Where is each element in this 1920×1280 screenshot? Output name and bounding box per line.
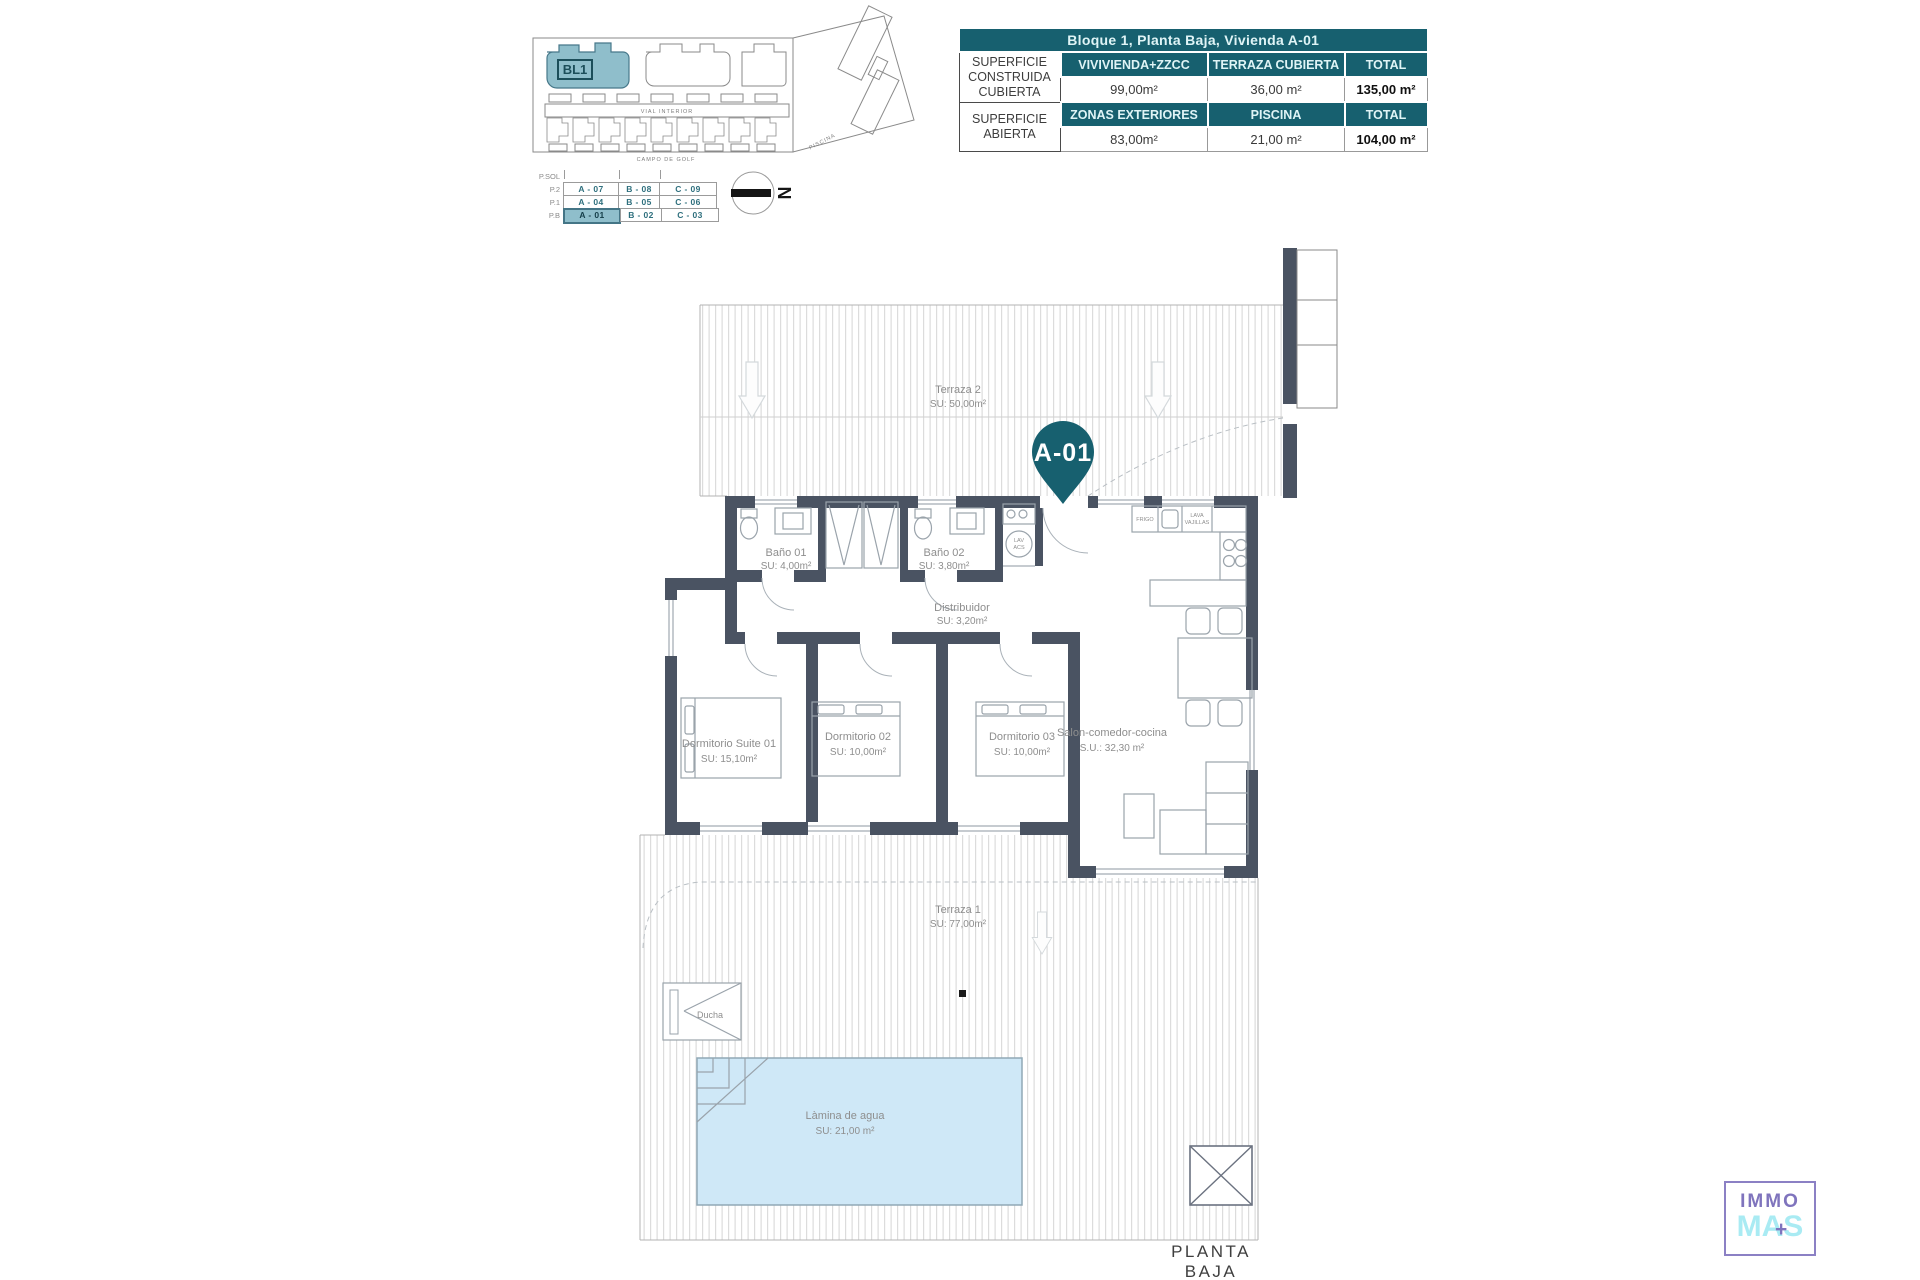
- acs-label: ACS: [1013, 545, 1025, 551]
- matrix-cell: C - 06: [659, 195, 717, 209]
- terrace-2: [700, 248, 1337, 500]
- lava-label-1: LAVA: [1190, 513, 1204, 519]
- logo-line-2: MAS: [1726, 1212, 1814, 1242]
- bano2-label: Baño 02: [924, 547, 965, 559]
- dorm2-label: Dormitorio 02: [825, 731, 891, 743]
- matrix-row-label: P.1: [534, 196, 564, 209]
- matrix-header: P.SOL: [534, 170, 564, 183]
- lava-label-2: VAJILLAS: [1185, 520, 1210, 526]
- summary-title: Bloque 1, Planta Baja, Vivienda A-01: [959, 28, 1428, 52]
- summary-value: 83,00m²: [1061, 127, 1208, 152]
- matrix-tick: [619, 170, 660, 179]
- unit-pin-label: A-01: [1034, 439, 1092, 467]
- distribuidor-area: SU: 3,20m²: [937, 616, 988, 627]
- matrix-tick: [564, 170, 619, 179]
- site-plan: PISCINA BL1 VIAL INTERIOR: [533, 6, 914, 163]
- immomas-logo: IMMO MAS +: [1724, 1181, 1816, 1256]
- site-piscina-label: PISCINA: [808, 133, 837, 152]
- logo-plus-icon: +: [1775, 1219, 1787, 1240]
- drain: [959, 990, 966, 997]
- frigo-label: FRIGO: [1136, 517, 1154, 523]
- summary-col-header: TOTAL: [1345, 102, 1428, 127]
- matrix-cell: A - 04: [563, 195, 619, 209]
- pool-label: Làmina de agua: [806, 1110, 886, 1122]
- distribuidor-label: Distribuidor: [934, 602, 990, 614]
- dorm3-area: SU: 10,00m²: [994, 747, 1051, 758]
- plan-drawing: PISCINA BL1 VIAL INTERIOR: [0, 0, 1920, 1280]
- bl1-label: BL1: [563, 62, 588, 77]
- summary-value: 99,00m²: [1061, 77, 1208, 102]
- matrix-row-label: P.B: [534, 209, 564, 224]
- lav-label: LAV: [1014, 538, 1024, 544]
- summary-col-header: PISCINA: [1208, 102, 1345, 127]
- bano2-area: SU: 3,80m²: [919, 561, 970, 572]
- dorm3-label: Dormitorio 03: [989, 731, 1055, 743]
- bano1-area: SU: 4,00m²: [761, 561, 812, 572]
- bano1-label: Baño 01: [766, 547, 807, 559]
- suite-area: SU: 15,10m²: [701, 754, 758, 765]
- matrix-cell: C - 03: [661, 208, 719, 222]
- floor-plan: Làmina de agua SU: 21,00 m² Ducha: [640, 248, 1337, 1240]
- plan-title: PLANTA BAJA: [1145, 1242, 1277, 1280]
- terraza2-label: Terraza 2: [935, 384, 981, 396]
- matrix-row-label: P.2: [534, 183, 564, 196]
- site-road-label: VIAL INTERIOR: [641, 109, 694, 115]
- suite-label: Dormitorio Suite 01: [682, 738, 776, 750]
- logo-line-1: IMMO: [1726, 1192, 1814, 1211]
- pool-area: SU: 21,00 m²: [816, 1126, 876, 1137]
- pool: Làmina de agua SU: 21,00 m²: [697, 1058, 1022, 1205]
- summary-table: Bloque 1, Planta Baja, Vivienda A-01 SUP…: [958, 27, 1429, 152]
- dorm2-area: SU: 10,00m²: [830, 747, 887, 758]
- terraza1-label: Terraza 1: [935, 904, 981, 916]
- shower-label: Ducha: [697, 1010, 723, 1020]
- summary-col-header: ZONAS EXTERIORES: [1061, 102, 1208, 127]
- summary-row2-label: SUPERFICIE ABIERTA: [959, 102, 1061, 152]
- summary-col-header: VIVIVIENDA+ZZCC: [1061, 52, 1208, 77]
- matrix-cell: B - 05: [618, 195, 660, 209]
- salon-area: S.U.: 32,30 m²: [1080, 743, 1145, 754]
- summary-value: 21,00 m²: [1208, 127, 1345, 152]
- summary-total: 135,00 m²: [1345, 77, 1428, 102]
- summary-value: 36,00 m²: [1208, 77, 1345, 102]
- building-bl1: [547, 43, 629, 88]
- shower: Ducha: [663, 983, 741, 1040]
- matrix-cell: B - 02: [620, 208, 662, 222]
- matrix-cell: A - 07: [563, 182, 619, 196]
- summary-col-header: TERRAZA CUBIERTA: [1208, 52, 1345, 77]
- matrix-tick: [660, 170, 717, 179]
- summary-row1-label: SUPERFICIE CONSTRUIDA CUBIERTA: [959, 52, 1061, 102]
- ac-unit: [1190, 1146, 1252, 1205]
- matrix-cell: B - 08: [618, 182, 660, 196]
- terraza1-area: SU: 77,00m²: [930, 919, 987, 930]
- unit-matrix: P.SOL P.2 A - 07 B - 08 C - 09 P.1 A - 0…: [534, 170, 719, 224]
- summary-total: 104,00 m²: [1345, 127, 1428, 152]
- matrix-cell: C - 09: [659, 182, 717, 196]
- salon-label: Salon-comedor-cocina: [1057, 727, 1168, 739]
- terraza2-area: SU: 50,00m²: [930, 399, 987, 410]
- north-arrow-icon: N: [731, 172, 794, 214]
- floorplan-page: PISCINA BL1 VIAL INTERIOR: [0, 0, 1920, 1280]
- matrix-cell-highlighted: A - 01: [563, 208, 621, 224]
- north-letter: N: [774, 187, 794, 200]
- summary-col-header: TOTAL: [1345, 52, 1428, 77]
- site-golf-label: CAMPO DE GOLF: [637, 157, 696, 163]
